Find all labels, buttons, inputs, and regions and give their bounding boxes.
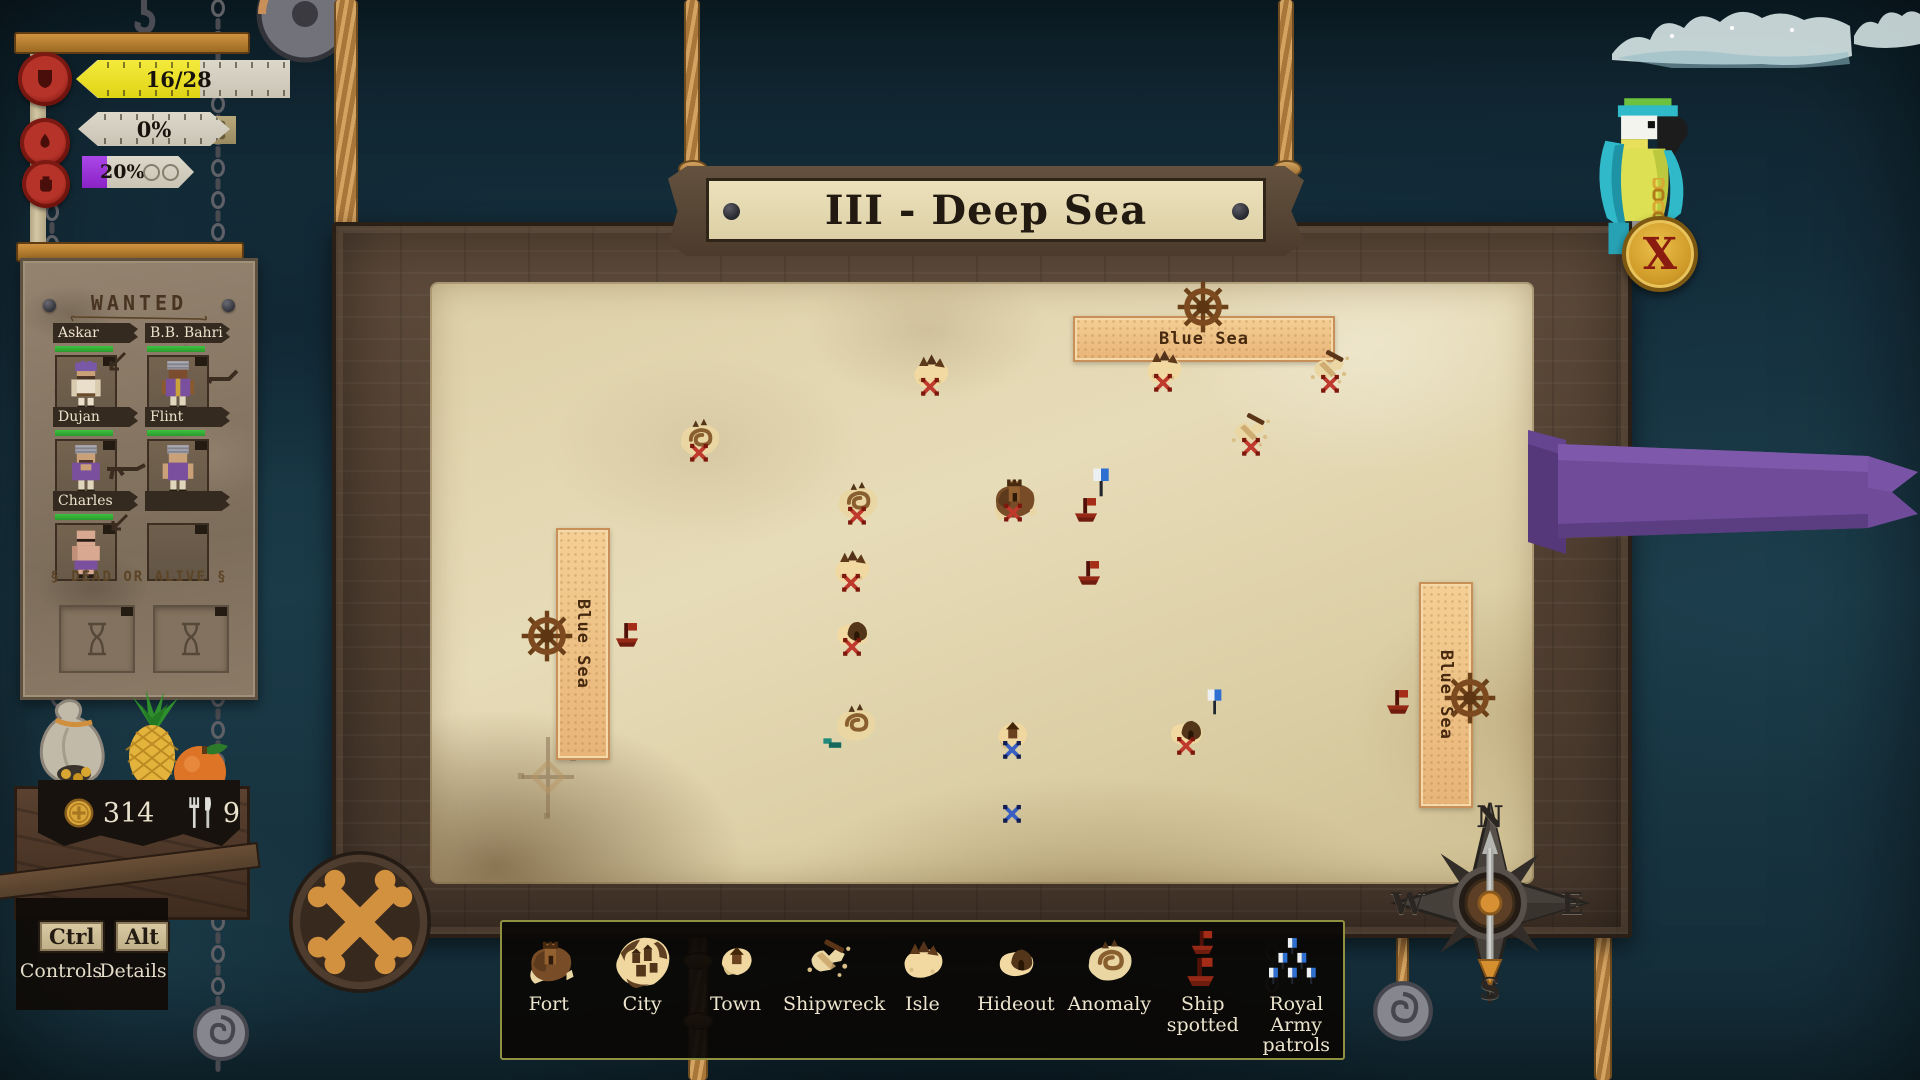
map-marker-anomaly[interactable] — [831, 475, 883, 531]
coin-icon — [64, 795, 94, 831]
map-marker-ship-red[interactable] — [1386, 690, 1411, 719]
cargo-progress-bar: 20% — [82, 156, 194, 188]
map-marker-shipwreck[interactable] — [1305, 344, 1355, 398]
map-marker-fort[interactable] — [986, 471, 1040, 529]
map-marker-isle[interactable] — [826, 543, 876, 597]
health-bar — [147, 346, 205, 352]
mark-red-x — [848, 507, 867, 530]
arrow-icon — [107, 513, 129, 535]
pending-bounty-slot — [153, 605, 229, 673]
city-icon — [611, 928, 673, 994]
map-marker-hideout[interactable] — [1162, 707, 1210, 759]
bones-medallion — [286, 848, 434, 996]
ctrl-key-button[interactable]: Ctrl — [38, 920, 105, 953]
map-marker-mark[interactable] — [1003, 804, 1022, 827]
bounty-name: B.B. Bahri — [145, 323, 230, 343]
compass-west-label: W — [1388, 887, 1428, 922]
cargo-slot — [143, 164, 160, 181]
resource-bar: 314 9 — [38, 780, 240, 846]
bounty-seal — [18, 52, 72, 106]
hideout-icon — [990, 928, 1042, 994]
map-marker-ship-red[interactable] — [1074, 498, 1099, 527]
bounty-name: Charles — [53, 491, 138, 511]
mark-red-x — [690, 444, 709, 467]
health-bar-fill — [147, 346, 205, 352]
sea-label: Blue Sea — [573, 599, 593, 689]
hook-icon — [128, 0, 158, 36]
money-bag-icon — [28, 694, 116, 792]
legend-label: Isle — [905, 994, 940, 1015]
legend-item-hideout: Hideout — [969, 928, 1062, 1056]
ship-wheel-icon — [1443, 671, 1497, 725]
cutlass-icon — [103, 349, 129, 375]
mark-red-x — [842, 574, 861, 597]
pending-bounty-slot — [59, 605, 135, 673]
legend-label: Anomaly — [1068, 994, 1152, 1015]
legend-label: Town — [710, 994, 761, 1015]
bounty-name: Dujan — [53, 407, 138, 427]
bounty-progress-bar: 16/28 — [76, 60, 290, 98]
pistol-icon — [105, 461, 149, 483]
fort-icon — [521, 928, 577, 994]
cargo-slot — [162, 164, 179, 181]
food-icon — [186, 792, 214, 834]
mark-red-x — [1177, 737, 1196, 760]
mark-red-x — [921, 378, 940, 401]
legend-label: Fort — [529, 994, 569, 1015]
legend-label: Royal Army patrols — [1250, 994, 1342, 1056]
mark-red-x — [1321, 375, 1340, 398]
cargo-seal — [22, 160, 70, 208]
alt-key-button[interactable]: Alt — [114, 920, 170, 953]
legend-item-ship-spotted: Ship spotted — [1156, 928, 1249, 1056]
legend-item-anomaly: Anomaly — [1063, 928, 1156, 1056]
rope-left-thick — [334, 0, 358, 232]
fold-notch — [195, 441, 207, 450]
mark-blue-x — [1003, 804, 1022, 827]
gold-amount: 314 — [103, 798, 155, 829]
shield-icon — [32, 66, 58, 92]
stats-hanger-bar — [14, 32, 250, 54]
legend-item-city: City — [595, 928, 688, 1056]
wanted-title: WANTED — [23, 291, 255, 315]
nail-icon — [723, 203, 740, 220]
health-bar-fill — [147, 430, 205, 436]
health-bar — [55, 430, 113, 436]
legend-item-fort: Fort — [502, 928, 595, 1056]
isle-icon — [894, 928, 950, 994]
map-marker-patrol-flag[interactable] — [1093, 468, 1110, 500]
mark-red-x — [843, 638, 862, 661]
game-screen: 16/28 0% 20% WANTED AskarB. — [0, 0, 1920, 1080]
mark-red-x — [1242, 438, 1261, 461]
spiral-pendant-icon — [192, 1004, 250, 1062]
legend-items: FortCityTownShipwreckIsleHideoutAnomalyS… — [502, 928, 1343, 1056]
bounty-name: Flint — [145, 407, 230, 427]
map-marker-anomaly[interactable] — [673, 412, 725, 468]
bounty-card-empty — [145, 491, 227, 577]
health-bar-fill — [55, 430, 113, 436]
ship-spotted-icon — [1184, 928, 1222, 994]
health-bar — [55, 514, 113, 520]
infamy-progress-bar: 0% — [78, 112, 230, 146]
legend-item-royal-patrols: Royal Army patrols — [1250, 928, 1343, 1056]
fold-notch — [215, 607, 227, 616]
cargo-progress-value: 20% — [98, 156, 147, 188]
fold-notch — [195, 525, 207, 534]
shipwreck-icon — [801, 928, 857, 994]
bounty-portrait — [147, 355, 209, 413]
jug-icon — [35, 173, 57, 195]
compass-east-label: E — [1552, 887, 1592, 922]
wanted-poster: WANTED AskarB.B. BahriDujanFlintCharles … — [20, 258, 258, 700]
legend-item-town: Town — [689, 928, 782, 1056]
legend-panel: FortCityTownShipwreckIsleHideoutAnomalyS… — [500, 920, 1345, 1060]
bounty-progress-value: 16/28 — [140, 60, 217, 98]
wave-crest — [1612, 2, 1852, 68]
fold-notch — [103, 441, 115, 450]
bounty-card-flint[interactable]: Flint — [145, 407, 227, 493]
map-title: III - Deep Sea — [706, 178, 1266, 242]
royal-patrols-icon — [1269, 928, 1323, 994]
legend-label: Ship spotted — [1157, 994, 1249, 1035]
wave-crest-small — [1854, 0, 1920, 50]
food-amount: 9 — [223, 798, 240, 829]
legend-item-shipwreck: Shipwreck — [782, 928, 875, 1056]
mark-red-x — [1004, 504, 1023, 527]
dead-or-alive-label: § DEAD OR ALIVE § — [23, 569, 255, 585]
patrol-flag-icon — [1207, 689, 1222, 718]
mark-red-x — [1154, 374, 1173, 397]
anomaly-icon — [1080, 928, 1138, 994]
rope-sign-left — [684, 0, 700, 172]
compass-south-label: S — [1470, 972, 1510, 1007]
legend-item-isle: Isle — [876, 928, 969, 1056]
bounty-name: Askar — [53, 323, 138, 343]
chain-small — [44, 204, 60, 246]
map-marker-hideout[interactable] — [828, 608, 876, 660]
legend-label: City — [623, 994, 662, 1015]
green-boat-icon — [823, 734, 843, 753]
legend-label: Hideout — [977, 994, 1054, 1015]
purple-ribbon — [1520, 412, 1920, 570]
flame-icon — [33, 131, 57, 155]
map-marker-ship-red[interactable] — [1077, 561, 1102, 590]
alt-key-label: Details — [88, 960, 178, 982]
compass-north-label: N — [1470, 800, 1510, 835]
health-bar — [147, 430, 205, 436]
fold-notch — [121, 607, 133, 616]
health-bar-fill — [55, 514, 113, 520]
map-marker-anomaly[interactable] — [829, 697, 881, 753]
mark-blue-x — [1003, 741, 1022, 764]
legend-label: Shipwreck — [783, 994, 875, 1015]
map-marker-ship-red[interactable] — [615, 623, 640, 652]
bounty-portrait — [147, 439, 209, 497]
ship-wheel-icon — [1176, 280, 1230, 334]
title-sign: III - Deep Sea — [668, 166, 1304, 256]
hotkey-panel: Ctrl Controls Alt Details — [16, 898, 168, 1010]
map-marker-isle[interactable] — [905, 347, 955, 401]
musket-icon — [205, 365, 239, 385]
map-marker-shipwreck[interactable] — [1226, 407, 1276, 461]
town-icon — [711, 928, 761, 994]
map-marker-town[interactable] — [988, 711, 1036, 763]
nail-icon — [1232, 203, 1249, 220]
map-marker-isle[interactable] — [1138, 343, 1188, 397]
rope-sign-right — [1278, 0, 1294, 172]
close-map-button[interactable]: X — [1622, 216, 1698, 292]
ship-wheel-icon — [520, 609, 574, 663]
bounty-name — [145, 491, 230, 511]
infamy-progress-value: 0% — [78, 112, 230, 146]
